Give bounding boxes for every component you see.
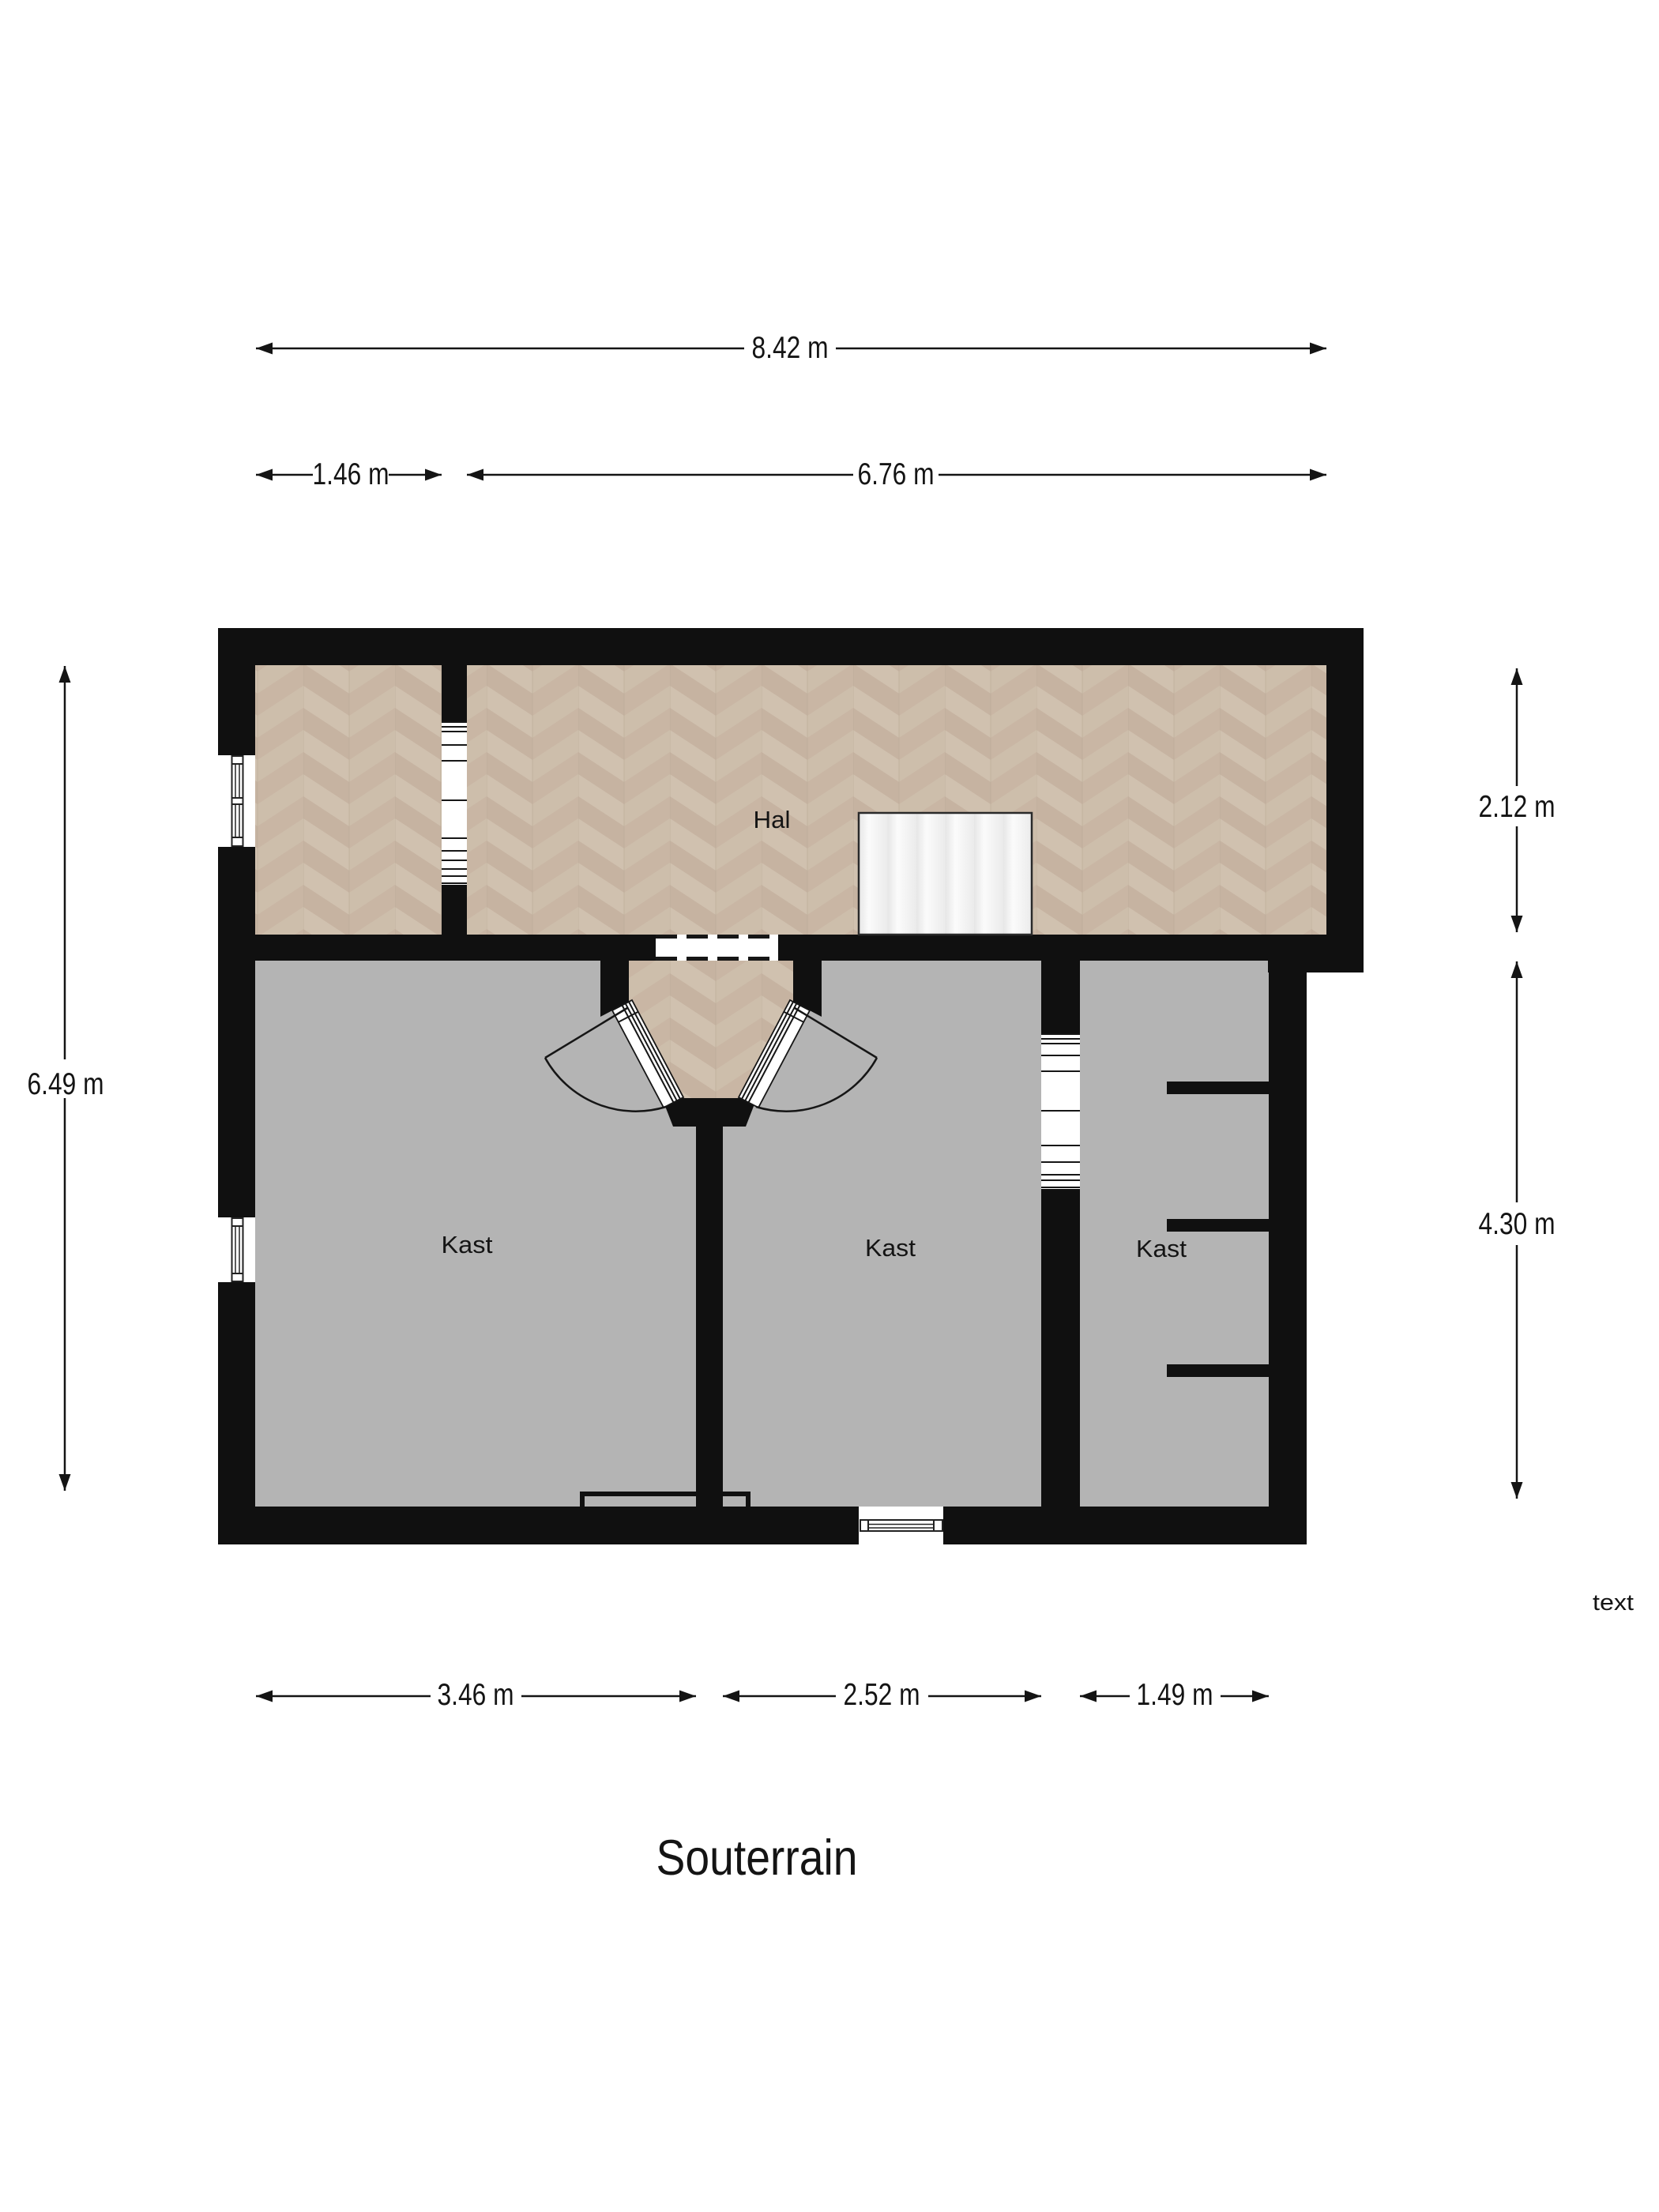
svg-text:Souterrain: Souterrain xyxy=(656,1830,858,1886)
svg-text:2.52 m: 2.52 m xyxy=(844,1678,920,1712)
svg-text:Kast: Kast xyxy=(442,1231,493,1258)
svg-text:Hal: Hal xyxy=(754,806,791,833)
svg-text:6.76 m: 6.76 m xyxy=(858,457,935,491)
svg-text:1.49 m: 1.49 m xyxy=(1137,1678,1213,1712)
svg-text:4.30 m: 4.30 m xyxy=(1479,1207,1556,1241)
svg-text:3.46 m: 3.46 m xyxy=(438,1678,514,1712)
svg-text:2.12 m: 2.12 m xyxy=(1479,790,1556,824)
svg-text:Kast: Kast xyxy=(1136,1235,1187,1262)
svg-text:Kast: Kast xyxy=(865,1234,916,1262)
svg-text:1.46 m: 1.46 m xyxy=(313,457,389,491)
svg-text:8.42 m: 8.42 m xyxy=(752,331,829,365)
svg-text:6.49 m: 6.49 m xyxy=(28,1067,104,1101)
svg-text:text: text xyxy=(1593,1590,1634,1616)
